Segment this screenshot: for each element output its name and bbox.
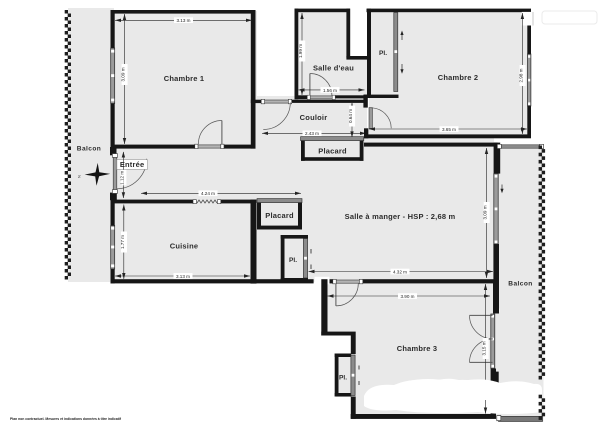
svg-text:3.09 m: 3.09 m (121, 67, 126, 81)
svg-text:N: N (77, 175, 82, 178)
svg-text:Chambre 1: Chambre 1 (164, 74, 205, 83)
svg-text:Placard: Placard (318, 147, 347, 156)
svg-text:1.56 m: 1.56 m (323, 88, 337, 93)
svg-text:1.77 m: 1.77 m (120, 235, 125, 249)
svg-text:Salle d'eau: Salle d'eau (313, 64, 354, 73)
svg-text:0.64 m: 0.64 m (348, 109, 353, 123)
svg-text:Chambre 2: Chambre 2 (438, 73, 479, 82)
svg-text:Pl.: Pl. (289, 257, 297, 264)
svg-text:Pl.: Pl. (379, 50, 387, 57)
svg-text:Chambre 3: Chambre 3 (397, 344, 438, 353)
svg-text:Balcon: Balcon (77, 146, 101, 153)
svg-text:Plan non contractuel. Mesures: Plan non contractuel. Mesures et indicat… (10, 417, 122, 421)
svg-text:4.24 m: 4.24 m (201, 191, 215, 196)
svg-text:Balcon: Balcon (508, 280, 532, 287)
svg-text:2.43 m: 2.43 m (305, 131, 319, 136)
svg-text:3.65 m: 3.65 m (442, 127, 456, 132)
svg-text:3.09 m: 3.09 m (483, 205, 488, 219)
svg-text:3.13 m: 3.13 m (176, 18, 190, 23)
svg-text:Pl.: Pl. (339, 375, 347, 382)
svg-text:2.98 m: 2.98 m (519, 68, 524, 82)
svg-text:1.99 m: 1.99 m (298, 44, 303, 58)
svg-text:3.15 m: 3.15 m (482, 341, 487, 355)
svg-text:Cuisine: Cuisine (170, 242, 199, 251)
svg-text:1.12 m: 1.12 m (120, 171, 125, 185)
svg-text:3.13 m: 3.13 m (176, 274, 190, 279)
svg-text:3.90 m: 3.90 m (400, 294, 414, 299)
svg-text:Couloir: Couloir (300, 113, 328, 122)
svg-text:Placard: Placard (265, 211, 294, 220)
svg-text:Salle à manger - HSP : 2,68 m: Salle à manger - HSP : 2,68 m (345, 212, 456, 221)
svg-text:4.32 m: 4.32 m (393, 269, 407, 274)
